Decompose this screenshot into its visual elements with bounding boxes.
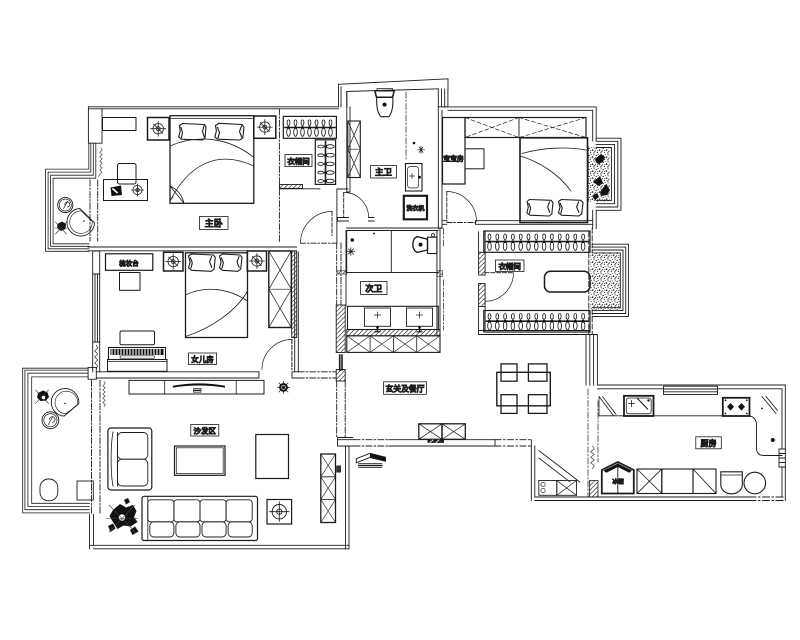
svg-text:梳妆台: 梳妆台 [119,259,139,268]
svg-text:厨房: 厨房 [701,438,717,448]
svg-text:玄关及餐厅: 玄关及餐厅 [386,383,425,393]
svg-text:次卫: 次卫 [365,284,383,294]
svg-text:主卫: 主卫 [375,167,393,177]
svg-text:衣帽间: 衣帽间 [498,261,521,271]
svg-text:主卧: 主卧 [205,218,223,229]
svg-text:洗衣机: 洗衣机 [406,205,424,213]
svg-text:冰箱: 冰箱 [612,478,624,486]
svg-text:宝宝房: 宝宝房 [443,154,464,163]
svg-text:衣帽间: 衣帽间 [287,156,310,166]
svg-text:女儿房: 女儿房 [191,354,214,364]
svg-text:沙发区: 沙发区 [194,426,217,436]
